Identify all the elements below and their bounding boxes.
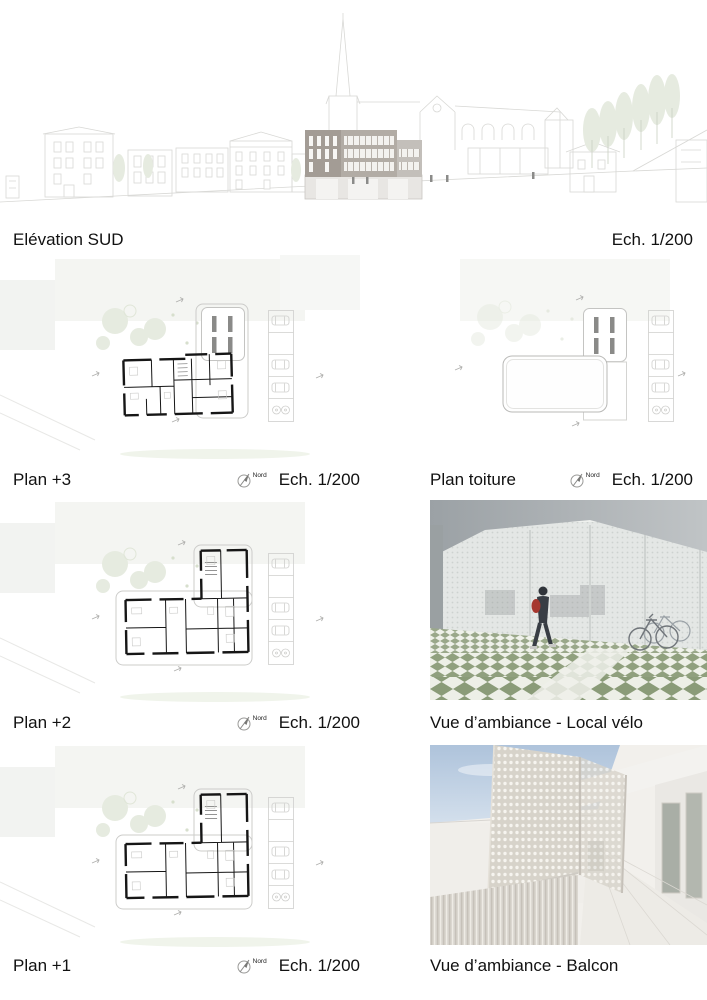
balcony-title: Vue d’ambiance - Balcon bbox=[430, 954, 618, 978]
architecture-presentation-sheet: Elévation SUD Ech. 1/200 bbox=[0, 0, 707, 1000]
plan-1-caption: Plan +1 Nord Ech. 1/200 bbox=[13, 954, 360, 978]
plan-2-drawing bbox=[0, 498, 360, 703]
elevation-scale: Ech. 1/200 bbox=[612, 228, 693, 252]
plan-3-scale: Ech. 1/200 bbox=[279, 468, 360, 492]
plan-1-drawing bbox=[0, 742, 360, 947]
plan-3-caption: Plan +3 Nord Ech. 1/200 bbox=[13, 468, 360, 492]
bike-room-view bbox=[430, 500, 707, 700]
plan-toiture-drawing bbox=[430, 255, 707, 460]
plan-3-title: Plan +3 bbox=[13, 468, 71, 492]
north-arrow-icon: Nord bbox=[570, 472, 600, 488]
plan-1-scale: Ech. 1/200 bbox=[279, 954, 360, 978]
balcony-caption: Vue d’ambiance - Balcon bbox=[430, 954, 693, 978]
bike-room-caption: Vue d’ambiance - Local vélo bbox=[430, 711, 693, 735]
north-arrow-icon: Nord bbox=[237, 958, 267, 974]
plan-toiture-scale: Ech. 1/200 bbox=[612, 468, 693, 492]
elevation-caption: Elévation SUD Ech. 1/200 bbox=[13, 228, 693, 252]
plan-2-scale: Ech. 1/200 bbox=[279, 711, 360, 735]
north-arrow-icon: Nord bbox=[237, 472, 267, 488]
balcony-view bbox=[430, 745, 707, 945]
plan-1-title: Plan +1 bbox=[13, 954, 71, 978]
plan-toiture-title: Plan toiture bbox=[430, 468, 516, 492]
plan-toiture-caption: Plan toiture Nord Ech. 1/200 bbox=[430, 468, 693, 492]
elevation-title: Elévation SUD bbox=[13, 228, 124, 252]
plan-3-drawing bbox=[0, 255, 360, 460]
plan-2-title: Plan +2 bbox=[13, 711, 71, 735]
plan-2-caption: Plan +2 Nord Ech. 1/200 bbox=[13, 711, 360, 735]
bike-room-title: Vue d’ambiance - Local vélo bbox=[430, 711, 643, 735]
elevation-drawing bbox=[0, 0, 707, 215]
north-arrow-icon: Nord bbox=[237, 715, 267, 731]
